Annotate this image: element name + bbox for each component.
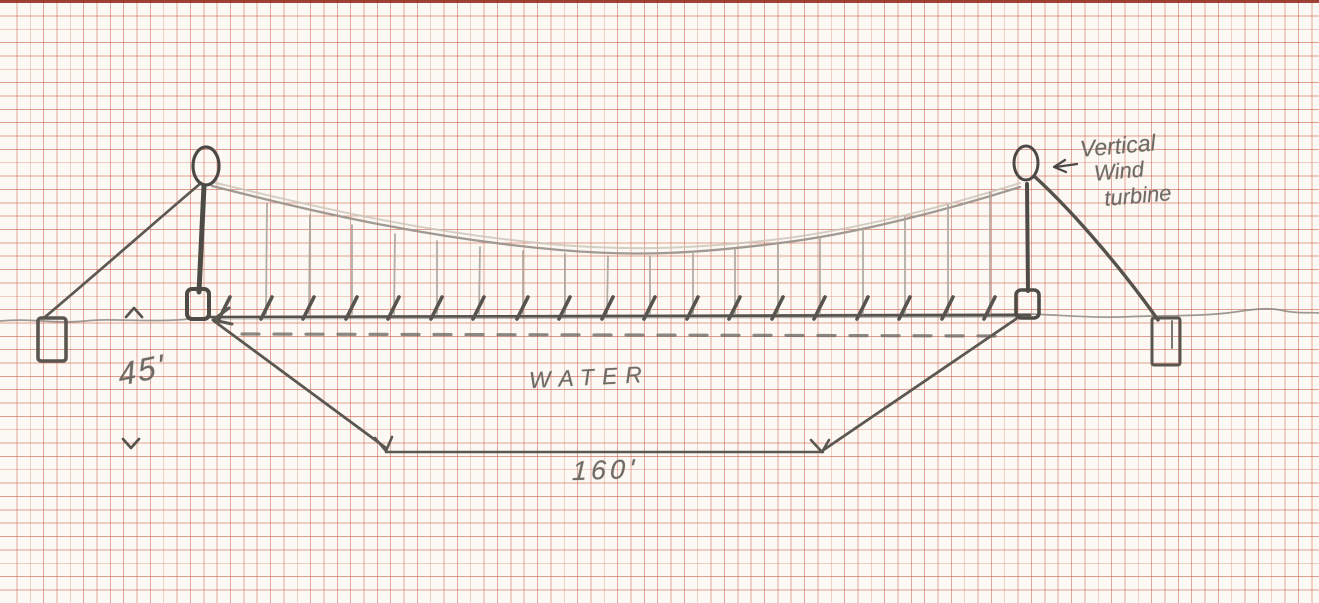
right-anchor-block <box>1152 318 1180 365</box>
vertical-wind-turbine-note: Vertical Wind turbine <box>1079 128 1173 213</box>
right-tower <box>1027 184 1028 291</box>
left-anchor-block <box>38 318 66 361</box>
left-wind-turbine-icon <box>193 147 219 185</box>
left-tower <box>199 186 204 292</box>
left-backstay-cable <box>45 183 201 317</box>
bridge-sketch-drawing <box>0 0 1319 603</box>
turbine-note-arrow-icon <box>1054 160 1077 172</box>
graph-paper-sketch: 45' WATER 160' Vertical Wind turbine <box>0 0 1319 603</box>
channel-bottom-width-label: 160' <box>571 454 638 487</box>
right-wind-turbine-icon <box>1014 146 1038 180</box>
water-dashed-line <box>242 334 1006 336</box>
deck-line <box>207 315 1030 317</box>
main-cable <box>212 186 1020 254</box>
